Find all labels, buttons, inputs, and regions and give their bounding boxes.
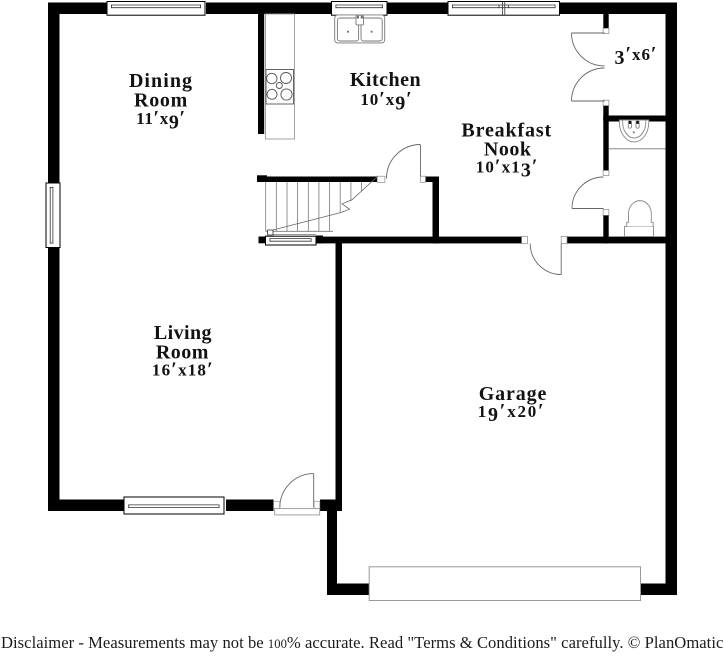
svg-text:Living: Living — [154, 322, 212, 344]
svg-text:16′x18′: 16′x18′ — [152, 359, 214, 381]
svg-text:Disclaimer - Measurements may: Disclaimer - Measurements may not be 100… — [1, 633, 723, 652]
